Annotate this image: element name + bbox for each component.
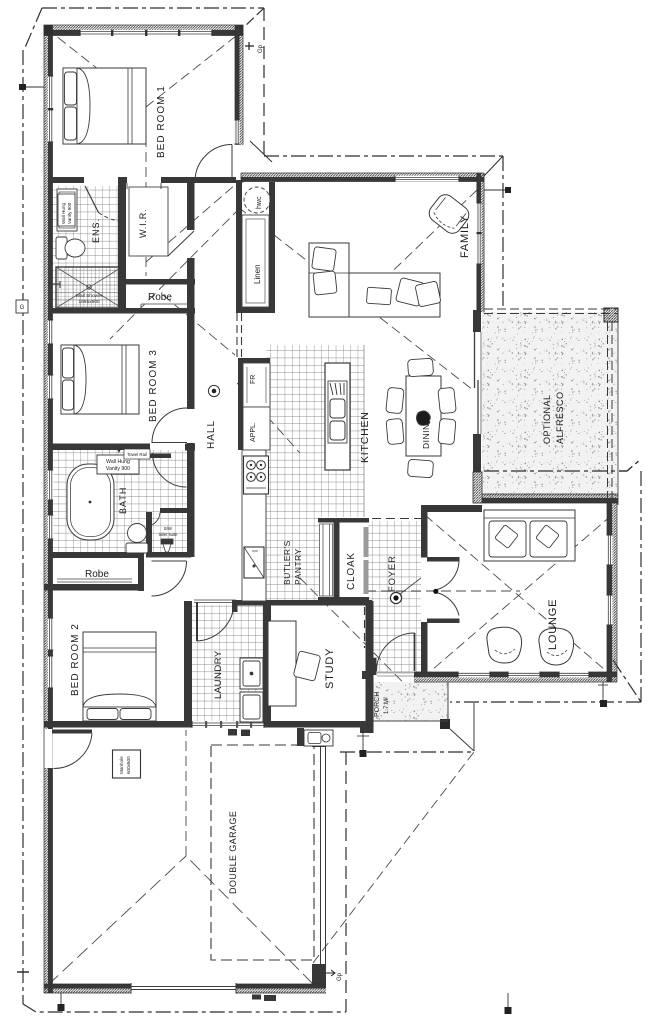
svg-text:OPTIONAL: OPTIONAL — [542, 394, 552, 444]
svg-text:Manhole: Manhole — [119, 756, 124, 774]
svg-text:KITCHEN: KITCHEN — [359, 411, 371, 463]
svg-text:FOYER: FOYER — [387, 555, 398, 592]
svg-text:HALL: HALL — [206, 420, 217, 449]
svg-text:ENS.: ENS. — [91, 218, 101, 243]
svg-text:1665x900: 1665x900 — [78, 299, 99, 305]
svg-text:BED ROOM 1: BED ROOM 1 — [156, 85, 167, 158]
svg-text:LOUNGE: LOUNGE — [547, 599, 559, 650]
svg-text:BUTLER'S: BUTLER'S — [282, 540, 292, 585]
svg-text:Vanity 900: Vanity 900 — [67, 202, 72, 224]
svg-text:600x600: 600x600 — [126, 756, 131, 774]
svg-text:B/W: B/W — [164, 526, 172, 531]
svg-text:APPL.: APPL. — [250, 422, 257, 442]
svg-text:PORCH: PORCH — [374, 692, 381, 717]
svg-text:toilet suite: toilet suite — [159, 532, 179, 537]
svg-text:Wall Hung: Wall Hung — [106, 459, 130, 465]
svg-text:Linen: Linen — [253, 264, 262, 284]
svg-text:hwc: hwc — [256, 196, 263, 209]
svg-text:PANTRY: PANTRY — [293, 548, 303, 585]
svg-text:DINING: DINING — [421, 416, 431, 449]
svg-text:LAUNDRY: LAUNDRY — [213, 650, 224, 699]
svg-text:1.7 M²: 1.7 M² — [384, 697, 390, 714]
svg-text:Vanity 900: Vanity 900 — [106, 466, 130, 472]
svg-text:Robe: Robe — [148, 292, 172, 303]
svg-text:FR: FR — [250, 375, 257, 384]
svg-text:Wall Hung: Wall Hung — [61, 203, 66, 224]
svg-text:BATH: BATH — [118, 487, 128, 514]
svg-text:Towel Rail: Towel Rail — [127, 452, 147, 457]
svg-text:Robe: Robe — [85, 569, 109, 580]
svg-text:CLOAK: CLOAK — [346, 552, 357, 590]
svg-text:FAMILY: FAMILY — [459, 215, 471, 258]
svg-text:G: G — [20, 305, 25, 311]
svg-text:Gp: Gp — [337, 972, 343, 981]
svg-text:BED ROOM 3: BED ROOM 3 — [148, 349, 159, 422]
svg-text:Wall Shower: Wall Shower — [76, 293, 103, 299]
svg-text:W.I.R.: W.I.R. — [138, 209, 148, 238]
svg-text:DOUBLE GARAGE: DOUBLE GARAGE — [228, 811, 238, 894]
svg-text:STUDY: STUDY — [324, 648, 336, 689]
svg-text:BED ROOM 2: BED ROOM 2 — [70, 623, 81, 696]
svg-text:Gp: Gp — [258, 44, 264, 53]
svg-text:ALFRESCO: ALFRESCO — [555, 391, 565, 444]
